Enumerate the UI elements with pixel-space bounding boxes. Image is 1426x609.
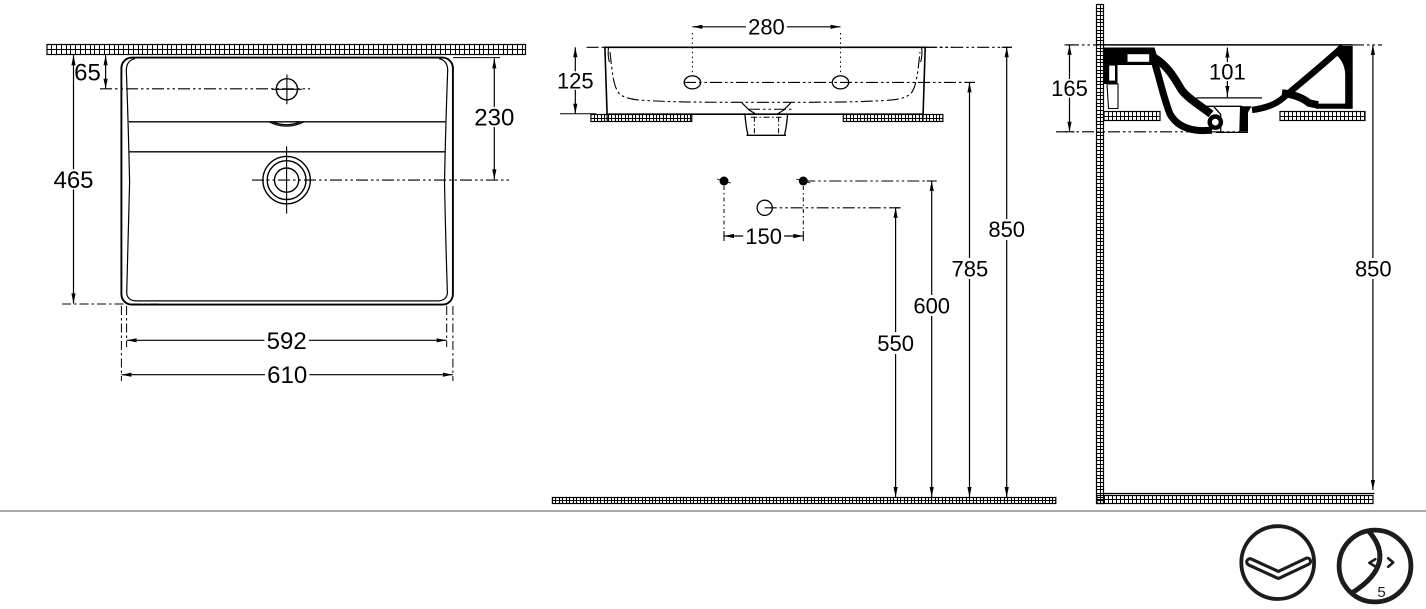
svg-text:125: 125	[557, 68, 594, 93]
svg-text:5: 5	[1377, 584, 1385, 601]
svg-text:165: 165	[1051, 76, 1088, 101]
svg-text:101: 101	[1209, 59, 1246, 84]
svg-text:850: 850	[1355, 256, 1392, 281]
svg-text:465: 465	[53, 167, 93, 194]
svg-text:850: 850	[988, 217, 1025, 242]
svg-text:785: 785	[952, 256, 989, 281]
svg-text:230: 230	[474, 105, 514, 132]
svg-text:65: 65	[74, 60, 101, 87]
svg-text:610: 610	[267, 362, 307, 389]
svg-text:150: 150	[745, 224, 782, 249]
svg-text:280: 280	[748, 15, 785, 40]
svg-text:592: 592	[267, 328, 307, 355]
svg-text:550: 550	[877, 331, 914, 356]
svg-text:600: 600	[913, 293, 950, 318]
